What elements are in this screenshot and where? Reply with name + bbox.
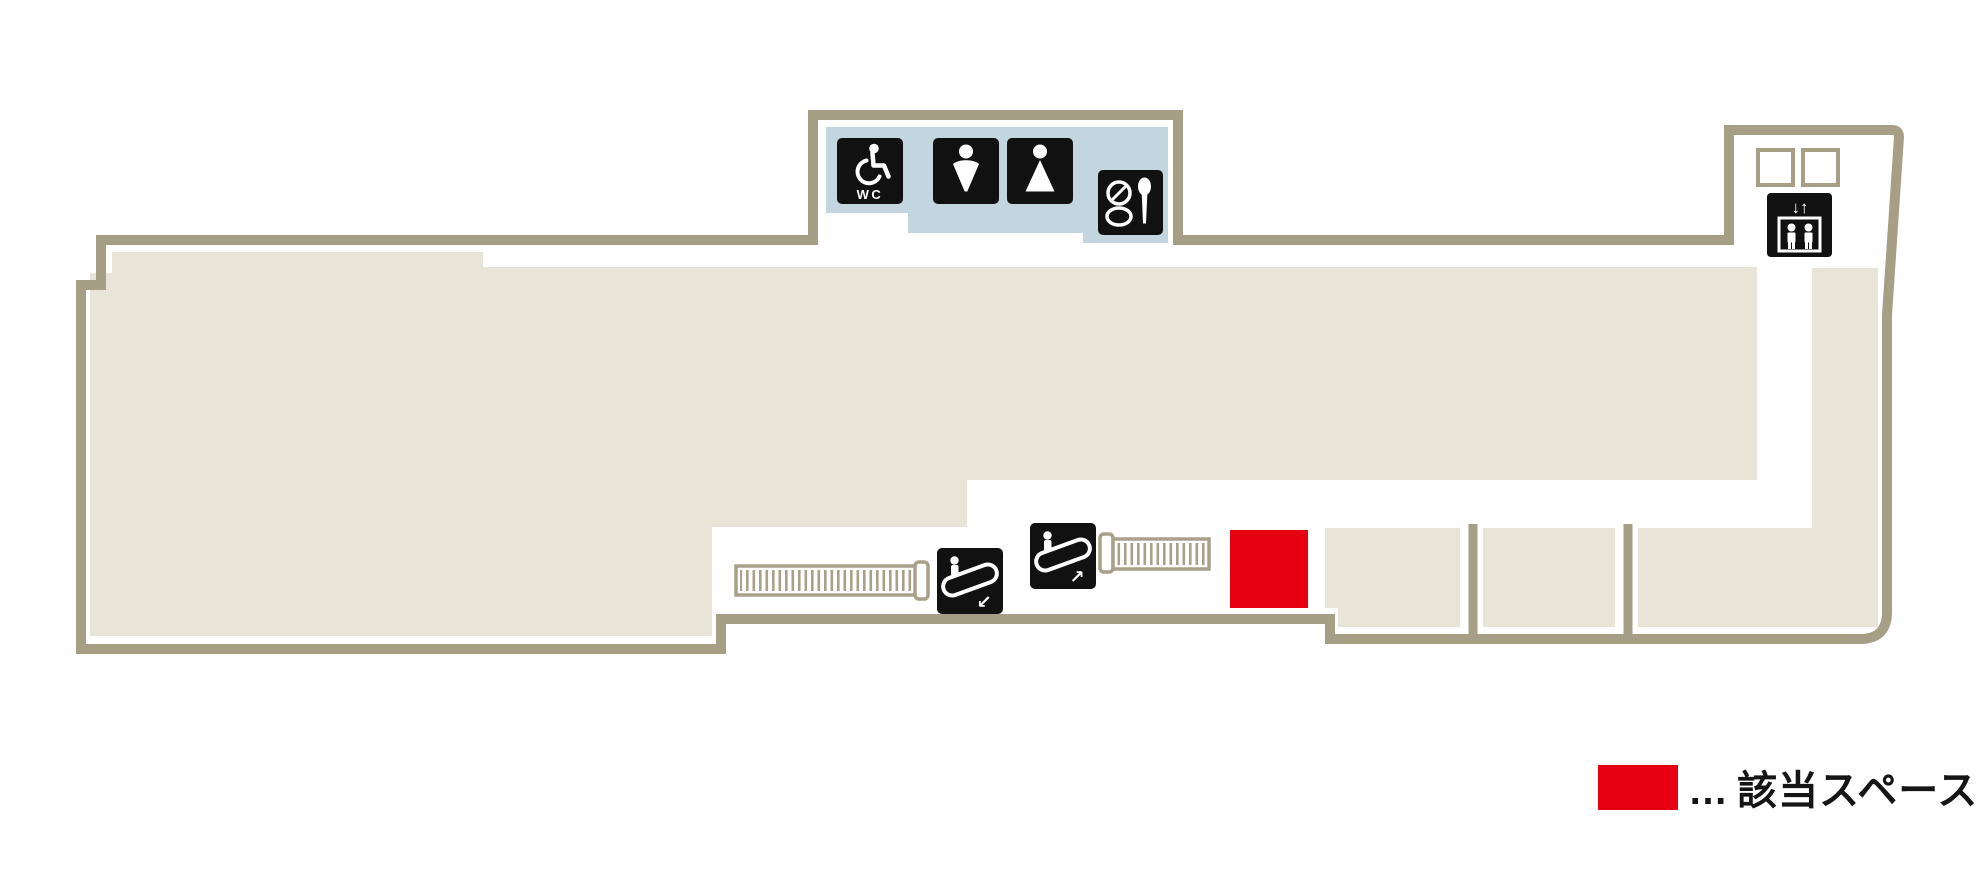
legend: …該当スペース bbox=[1598, 758, 1978, 816]
legend-text: 該当スペース bbox=[1737, 769, 1978, 813]
elevator-shaft-1 bbox=[1758, 150, 1793, 185]
wheelchair-wc-icon: WC bbox=[837, 138, 903, 204]
escalator-up-icon: ↗ bbox=[1030, 523, 1096, 589]
floor-plan-drawing bbox=[0, 0, 1980, 881]
escalator-down-icon: ↙ bbox=[937, 548, 1003, 614]
stairs-right-graphic bbox=[1098, 530, 1214, 576]
legend-label: …該当スペース bbox=[1688, 758, 1978, 816]
tenant-compartment-1 bbox=[1325, 528, 1460, 627]
escalator-down-arrow: ↙ bbox=[976, 592, 991, 612]
womens-restroom-icon bbox=[1007, 138, 1073, 204]
highlighted-space-marker bbox=[1230, 530, 1308, 608]
wc-label: WC bbox=[857, 187, 884, 202]
powder-room-icon bbox=[1098, 170, 1163, 235]
mens-restroom-icon bbox=[933, 138, 999, 204]
elevator-shaft-2 bbox=[1803, 150, 1838, 185]
tenant-compartment-2 bbox=[1483, 528, 1615, 627]
legend-dots: … bbox=[1688, 769, 1729, 813]
elevator-arrows: ↓↑ bbox=[1792, 198, 1809, 217]
legend-red-swatch bbox=[1598, 765, 1678, 810]
escalator-up-arrow: ↗ bbox=[1069, 567, 1084, 587]
stairs-left-graphic bbox=[733, 558, 931, 602]
elevator-icon: ↓↑ bbox=[1767, 193, 1832, 257]
floor-map-canvas: WC ↓↑ bbox=[0, 0, 1980, 881]
